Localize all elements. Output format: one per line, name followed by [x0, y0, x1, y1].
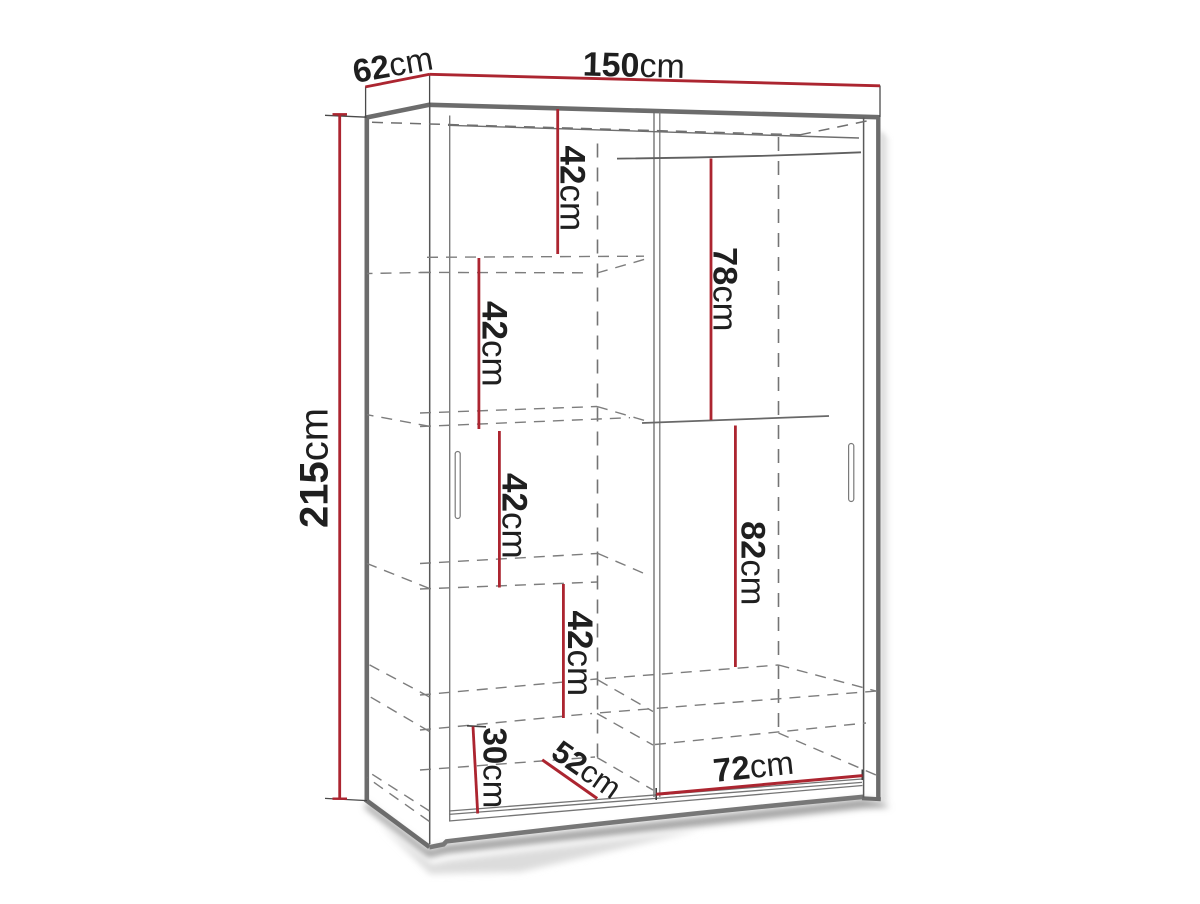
svg-text:42cm: 42cm — [475, 301, 514, 387]
svg-text:42cm: 42cm — [560, 611, 599, 697]
svg-text:215cm: 215cm — [293, 408, 337, 528]
svg-text:78cm: 78cm — [706, 247, 744, 331]
svg-text:42cm: 42cm — [553, 146, 592, 232]
svg-text:42cm: 42cm — [495, 473, 534, 559]
svg-text:150cm: 150cm — [582, 46, 685, 86]
svg-text:82cm: 82cm — [734, 521, 772, 605]
svg-text:30cm: 30cm — [477, 728, 514, 809]
